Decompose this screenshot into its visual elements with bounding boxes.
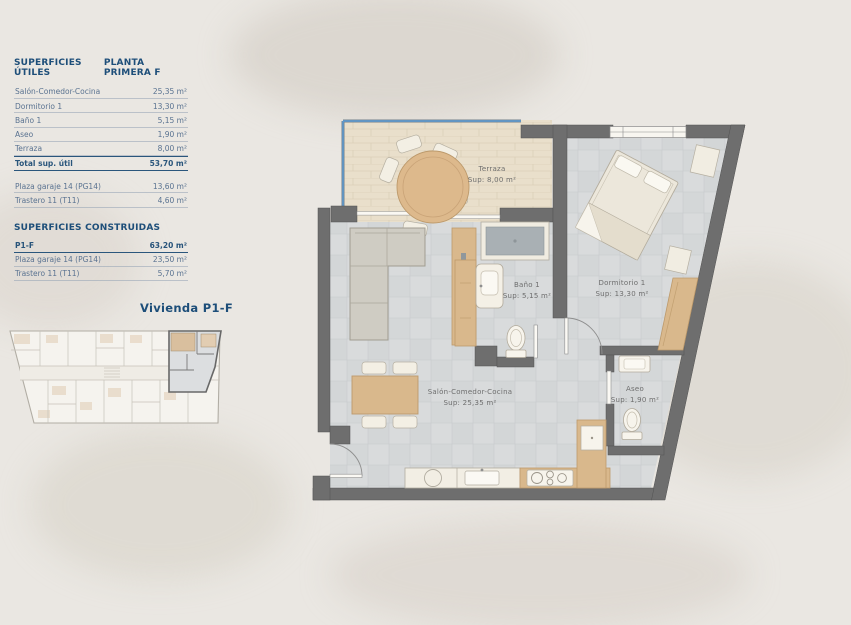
row-value: 13,30 m² bbox=[153, 102, 187, 111]
dining-chair bbox=[393, 416, 417, 428]
row-value: 63,20 m² bbox=[150, 241, 187, 250]
row-value: 1,90 m² bbox=[158, 130, 187, 139]
row-value: 53,70 m² bbox=[150, 159, 187, 168]
row-value: 25,35 m² bbox=[153, 87, 187, 96]
row-value: 8,00 m² bbox=[158, 144, 187, 153]
table-row: Aseo 1,90 m² bbox=[14, 128, 188, 142]
dining-chair bbox=[393, 362, 417, 374]
corridor bbox=[20, 366, 172, 380]
room-label-bano: Baño 1 bbox=[514, 281, 540, 289]
dining-chair bbox=[362, 416, 386, 428]
row-label: Terraza bbox=[15, 144, 42, 153]
room-sup-bano: Sup: 5,15 m² bbox=[503, 292, 551, 300]
surfaces-panel: SUPERFICIES ÚTILES PLANTA PRIMERA F Saló… bbox=[14, 58, 188, 281]
building-overview-plan bbox=[4, 320, 236, 435]
table-row: Trastero 11 (T11) 5,70 m² bbox=[14, 267, 188, 281]
useful-surfaces-title: SUPERFICIES ÚTILES bbox=[14, 58, 104, 78]
surfaces-panel-header: SUPERFICIES ÚTILES PLANTA PRIMERA F bbox=[14, 58, 188, 78]
table-row: Salón-Comedor-Cocina 25,35 m² bbox=[14, 85, 188, 99]
built-surfaces-title: SUPERFICIES CONSTRUIDAS bbox=[14, 223, 188, 233]
table-row: Plaza garaje 14 (PG14) 13,60 m² bbox=[14, 179, 188, 193]
bedroom-window bbox=[610, 127, 686, 138]
mini-unit-bedroom bbox=[201, 334, 216, 347]
main-floor-plan: Terraza Sup: 8,00 m² Dormitorio 1 Sup: 1… bbox=[305, 108, 750, 503]
row-label: Trastero 11 (T11) bbox=[15, 269, 79, 278]
room-sup-aseo: Sup: 1,90 m² bbox=[611, 396, 659, 404]
dining-chair bbox=[362, 362, 386, 374]
row-label: Baño 1 bbox=[15, 116, 41, 125]
row-value: 4,60 m² bbox=[158, 196, 187, 205]
row-value: 13,60 m² bbox=[153, 182, 187, 191]
table-row: Terraza 8,00 m² bbox=[14, 142, 188, 156]
floor-title: PLANTA PRIMERA F bbox=[104, 58, 188, 78]
bath-vanity-wood bbox=[455, 260, 476, 346]
row-label: Aseo bbox=[15, 130, 33, 139]
room-sup-salon: Sup: 25,35 m² bbox=[443, 399, 496, 407]
row-label: Plaza garaje 14 (PG14) bbox=[15, 182, 101, 191]
table-row: Trastero 11 (T11) 4,60 m² bbox=[14, 193, 188, 207]
shower-drain-icon bbox=[513, 239, 516, 242]
watercolor-stain bbox=[230, 0, 560, 120]
table-row: P1-F 63,20 m² bbox=[14, 239, 188, 253]
room-label-aseo: Aseo bbox=[626, 385, 644, 393]
room-sup-dormitorio: Sup: 13,30 m² bbox=[595, 290, 648, 298]
faucet-icon bbox=[480, 285, 483, 288]
toilet-icon bbox=[622, 409, 642, 440]
row-label: Total sup. útil bbox=[15, 159, 73, 168]
room-label-dormitorio: Dormitorio 1 bbox=[598, 279, 645, 287]
total-row: Total sup. útil 53,70 m² bbox=[14, 156, 188, 171]
room-sup-terraza: Sup: 8,00 m² bbox=[468, 176, 516, 184]
unit-key-label: Vivienda P1-F bbox=[112, 301, 233, 315]
bathroom-door bbox=[534, 325, 537, 358]
kitchen-sink bbox=[465, 471, 499, 485]
faucet-icon bbox=[481, 469, 484, 472]
row-value: 23,50 m² bbox=[153, 255, 187, 264]
table-row: Dormitorio 1 13,30 m² bbox=[14, 99, 188, 113]
kitchen-counter bbox=[405, 468, 520, 488]
watercolor-stain bbox=[30, 430, 290, 580]
row-value: 5,15 m² bbox=[158, 116, 187, 125]
row-value: 5,70 m² bbox=[158, 269, 187, 278]
terrace-round-table bbox=[397, 151, 469, 223]
row-label: Dormitorio 1 bbox=[15, 102, 62, 111]
row-label: Plaza garaje 14 (PG14) bbox=[15, 255, 101, 264]
row-label: P1-F bbox=[15, 241, 34, 250]
room-label-salon: Salón-Comedor-Cocina bbox=[428, 388, 513, 396]
table-row: Plaza garaje 14 (PG14) 23,50 m² bbox=[14, 253, 188, 267]
table-row: Baño 1 5,15 m² bbox=[14, 113, 188, 127]
mini-unit-terrace bbox=[171, 333, 195, 351]
watercolor-stain bbox=[330, 520, 750, 625]
room-label-terraza: Terraza bbox=[477, 165, 505, 173]
dining-table bbox=[352, 376, 418, 414]
plan-sheet: SUPERFICIES ÚTILES PLANTA PRIMERA F Saló… bbox=[0, 0, 851, 625]
row-label: Salón-Comedor-Cocina bbox=[15, 87, 100, 96]
row-label: Trastero 11 (T11) bbox=[15, 196, 79, 205]
toilet-icon bbox=[506, 326, 526, 358]
